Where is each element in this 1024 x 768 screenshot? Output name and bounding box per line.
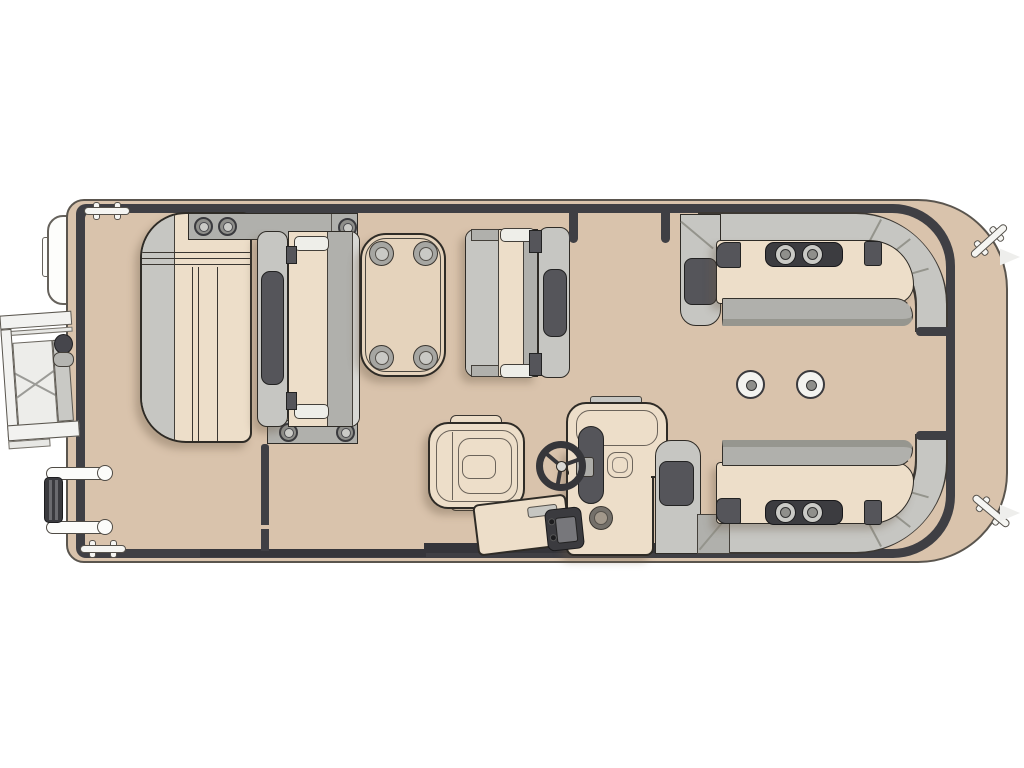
swim-gate-ramp — [0, 311, 81, 450]
gate-brace — [12, 360, 58, 409]
ladder-rung-line — [55, 480, 58, 520]
ladder-rail-ring — [97, 519, 113, 535]
mooring-cleat — [80, 540, 126, 558]
gate-bottom-lip — [8, 438, 50, 449]
bow-fin — [1000, 246, 1020, 268]
pontoon-floorplan-canvas — [0, 0, 1024, 768]
gate-panel — [12, 340, 58, 427]
folded-ladder-stack — [44, 477, 63, 523]
cleat-bar — [84, 207, 130, 215]
gate-hinge-ring — [53, 352, 74, 367]
ladder-rail-ring — [97, 465, 113, 481]
exterior-hardware — [0, 0, 1024, 768]
ladder-rung-line — [49, 480, 52, 520]
gate-hinge-knob — [54, 334, 73, 354]
mooring-cleat — [84, 202, 130, 220]
cleat-bar — [80, 545, 126, 553]
